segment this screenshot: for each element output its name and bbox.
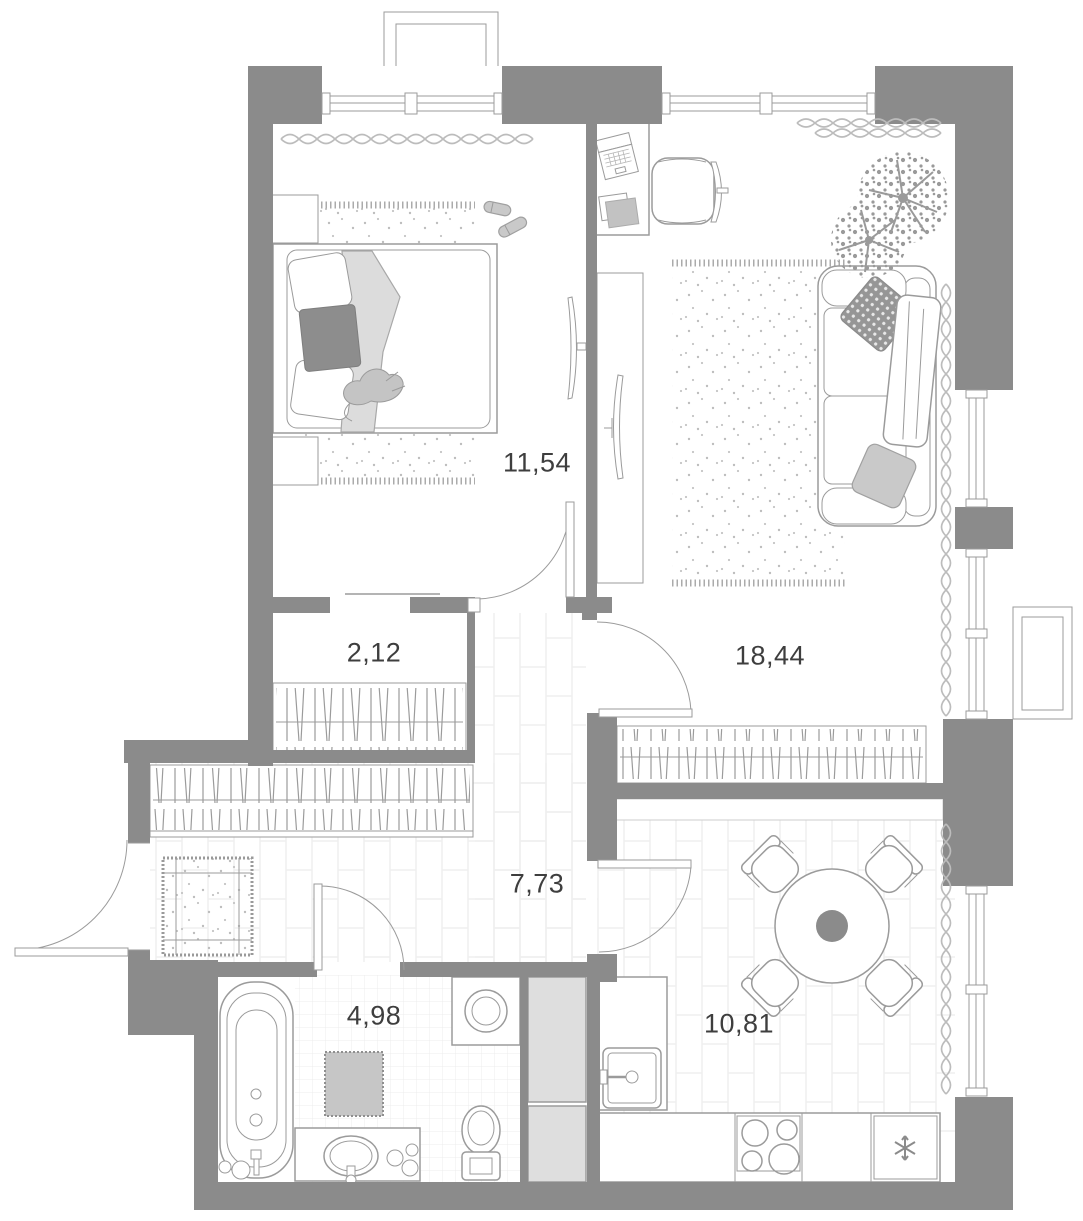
tv-mount: [577, 343, 586, 350]
living-wardrobe: [617, 726, 926, 783]
floor-plan: 11,54 2,12 18,44 7,73 4,98 10,81: [0, 0, 1083, 1221]
sofa: [818, 266, 942, 526]
hall-hangers: [153, 768, 470, 830]
dining-table: [775, 869, 889, 983]
room-label-living-room: 18,44: [735, 641, 805, 672]
room-label-kitchen: 10,81: [704, 1009, 774, 1040]
office-chair: [652, 158, 728, 224]
right-window-1: [955, 390, 1013, 507]
dark-pillow: [299, 304, 361, 372]
slipper: [483, 200, 512, 216]
sink-counter: [597, 977, 667, 1110]
bedroom-furniture: [272, 195, 586, 485]
ac-basket-inner: [1022, 617, 1063, 710]
nightstand: [272, 437, 318, 485]
room-label-closet: 2,12: [347, 638, 402, 669]
plant: [831, 152, 949, 278]
bath-mat: [325, 1052, 383, 1116]
washing-machine: [452, 977, 520, 1045]
right-window-2: [955, 549, 1013, 719]
bedroom-window: [322, 66, 502, 124]
nightstand: [272, 195, 318, 243]
duct-shaft: [528, 977, 586, 1102]
bedroom-tv: [568, 297, 577, 399]
vanity-sink: [295, 1128, 420, 1185]
kitchen-window: [955, 886, 1013, 1097]
entry-door: [15, 840, 150, 956]
room-label-bathroom: 4,98: [347, 1001, 402, 1032]
living-room-door: [597, 622, 692, 717]
closet-hangers: [276, 688, 463, 752]
balcony-box-inner: [396, 24, 486, 68]
bedroom-door: [468, 502, 574, 612]
floor-plan-drawing: [0, 0, 1083, 1221]
room-label-hallway: 7,73: [510, 869, 565, 900]
living-window: [662, 66, 875, 124]
slipper: [497, 215, 529, 239]
hall-wardrobe-front: [150, 831, 473, 837]
room-label-bedroom: 11,54: [503, 448, 571, 479]
kitchen-top-ledge: [612, 799, 943, 820]
duct-shaft: [528, 1106, 586, 1182]
kitchen-counter: [597, 1113, 940, 1182]
living-room-furniture: [596, 122, 949, 583]
bathtub: [219, 982, 293, 1179]
toilet: [462, 1106, 500, 1180]
